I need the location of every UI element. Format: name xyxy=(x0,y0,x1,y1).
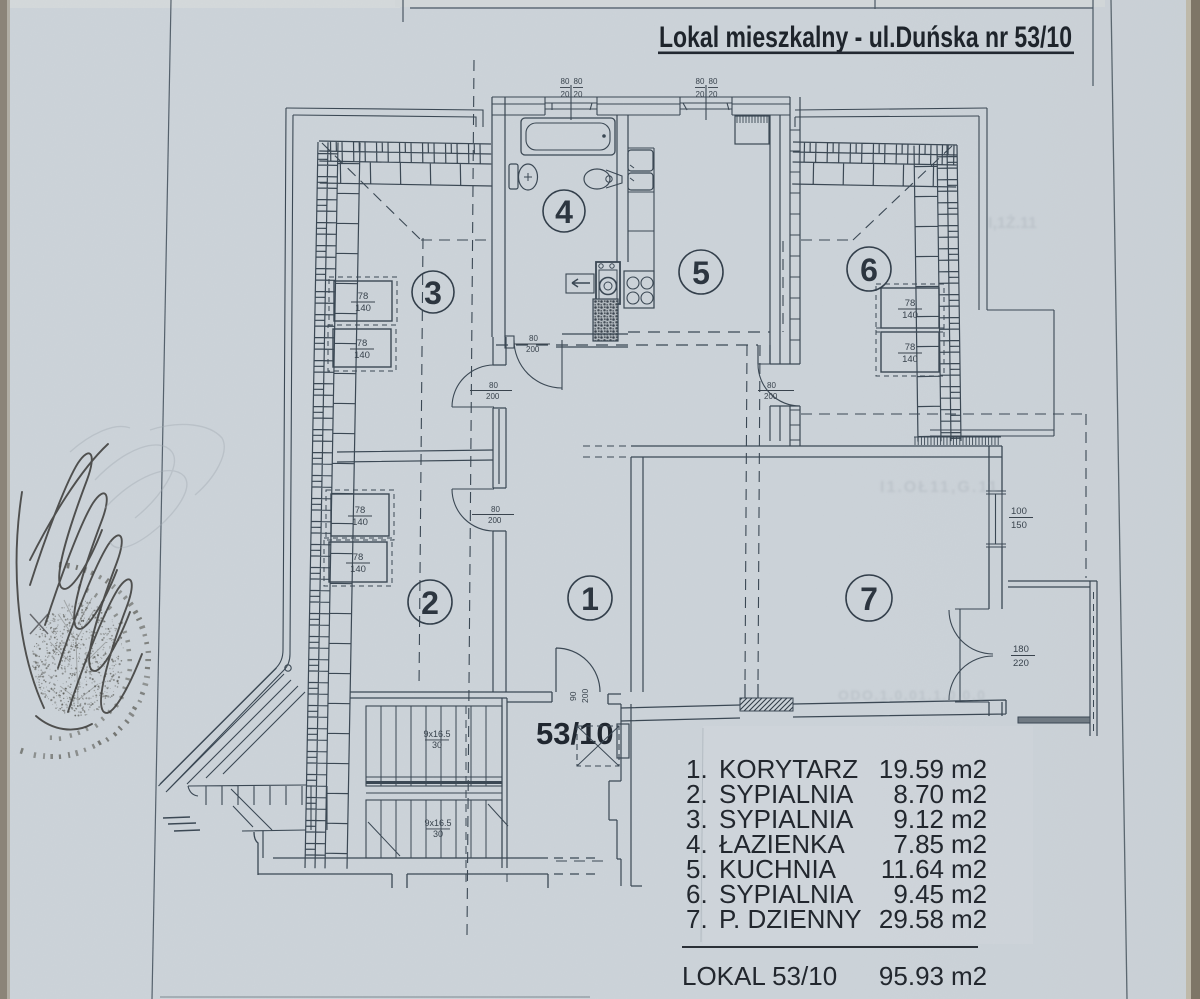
svg-text:5: 5 xyxy=(692,255,710,291)
svg-text:200: 200 xyxy=(580,689,590,703)
svg-text:I,1Ż.11: I,1Ż.11 xyxy=(988,214,1037,232)
svg-text:80: 80 xyxy=(561,77,570,86)
svg-text:80: 80 xyxy=(767,381,776,390)
svg-text:80: 80 xyxy=(709,77,718,86)
svg-text:9x16.5: 9x16.5 xyxy=(423,729,450,739)
svg-text:1: 1 xyxy=(581,581,599,617)
svg-text:Lokal mieszkalny - ul.Duńska n: Lokal mieszkalny - ul.Duńska nr 53/10 xyxy=(659,21,1072,54)
svg-text:80: 80 xyxy=(529,334,538,343)
svg-text:140: 140 xyxy=(354,350,370,361)
svg-text:7.: 7. xyxy=(686,904,708,934)
svg-text:LOKAL 53/10: LOKAL 53/10 xyxy=(682,961,837,991)
svg-text:78: 78 xyxy=(355,505,366,516)
svg-text:80: 80 xyxy=(491,505,500,514)
svg-text:20: 20 xyxy=(561,90,570,99)
svg-text:140: 140 xyxy=(902,354,918,365)
svg-text:m2: m2 xyxy=(951,961,987,991)
svg-text:80: 80 xyxy=(489,381,498,390)
svg-text:78: 78 xyxy=(905,342,916,353)
svg-text:4: 4 xyxy=(555,194,573,230)
svg-text:78: 78 xyxy=(358,291,369,302)
svg-text:53/10: 53/10 xyxy=(536,716,614,751)
svg-text:30: 30 xyxy=(432,740,442,750)
svg-text:180: 180 xyxy=(1013,644,1029,655)
svg-text:m2: m2 xyxy=(951,904,987,934)
svg-text:29.58: 29.58 xyxy=(879,904,944,934)
svg-text:100: 100 xyxy=(1011,506,1027,517)
svg-text:9x16.5: 9x16.5 xyxy=(424,818,451,828)
svg-text:200: 200 xyxy=(486,392,500,401)
svg-text:78: 78 xyxy=(905,298,916,309)
svg-text:7: 7 xyxy=(860,581,878,617)
svg-text:80: 80 xyxy=(574,77,583,86)
svg-text:P. DZIENNY: P. DZIENNY xyxy=(719,904,862,934)
svg-text:200: 200 xyxy=(764,392,778,401)
svg-text:78: 78 xyxy=(353,552,364,563)
svg-text:2: 2 xyxy=(421,585,439,621)
svg-text:220: 220 xyxy=(1013,658,1029,669)
svg-text:95.93: 95.93 xyxy=(879,961,944,991)
svg-text:I1.OŁ11,G.11: I1.OŁ11,G.11 xyxy=(880,479,999,496)
svg-text:90: 90 xyxy=(568,691,578,701)
svg-text:20: 20 xyxy=(696,90,705,99)
svg-text:20: 20 xyxy=(574,90,583,99)
svg-text:140: 140 xyxy=(355,303,371,314)
svg-text:20: 20 xyxy=(709,90,718,99)
svg-text:3: 3 xyxy=(424,275,442,311)
svg-text:200: 200 xyxy=(526,345,540,354)
svg-text:140: 140 xyxy=(350,564,366,575)
svg-text:200: 200 xyxy=(488,516,502,525)
svg-text:140: 140 xyxy=(902,310,918,321)
svg-text:6: 6 xyxy=(860,252,878,288)
svg-text:80: 80 xyxy=(696,77,705,86)
svg-text:78: 78 xyxy=(357,338,368,349)
svg-text:ODO.1.0,01.1.0.0.0: ODO.1.0,01.1.0.0.0 xyxy=(838,687,986,703)
svg-text:150: 150 xyxy=(1011,520,1027,531)
svg-text:30: 30 xyxy=(433,829,443,839)
svg-text:140: 140 xyxy=(352,517,368,528)
